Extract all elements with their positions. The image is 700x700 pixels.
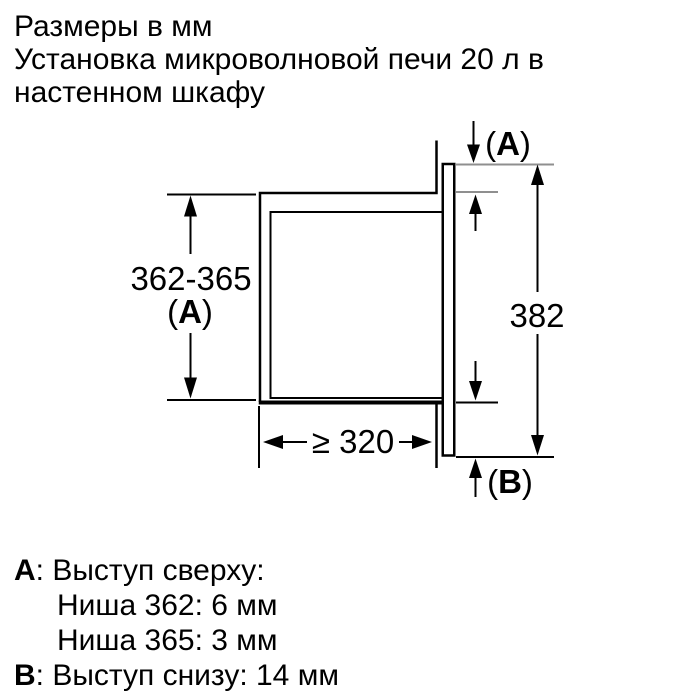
arrow-down-head xyxy=(184,378,197,399)
arrow-down-head xyxy=(467,145,480,164)
dim-niche-depth: ≥ 320 xyxy=(259,406,432,468)
legend-key-b: B xyxy=(14,659,36,692)
arrow-down-head xyxy=(469,381,482,401)
dim-front-frame-height: 382 xyxy=(509,165,564,456)
niche-height-value: 362-365 xyxy=(130,260,251,297)
legend-item-a-row1: Ниша 362: 6 мм xyxy=(57,588,339,623)
arrow-up-head xyxy=(184,196,197,217)
legend-item-b: B: Выступ снизу: 14 мм xyxy=(14,658,339,693)
cabinet-top-and-back xyxy=(260,141,437,403)
microwave-front-frame xyxy=(443,164,455,456)
dim-niche-height: 362-365 (A) xyxy=(130,195,256,401)
legend-key-a: A xyxy=(14,554,36,587)
arrow-up-head xyxy=(531,165,544,186)
niche-depth-value: ≥ 320 xyxy=(312,423,394,460)
bottom-protrusion-ref-label: (B) xyxy=(487,463,533,500)
legend-item-a-row2: Ниша 365: 3 мм xyxy=(57,623,339,658)
microwave-body xyxy=(271,212,447,398)
legend-text-a: : Выступ сверху: xyxy=(36,554,265,587)
legend-text-b: : Выступ снизу: 14 мм xyxy=(36,659,339,692)
legend-item-a: A: Выступ сверху: xyxy=(14,553,339,588)
niche-height-ref-label: (A) xyxy=(167,293,213,330)
top-protrusion-ref-label: (A) xyxy=(485,125,531,162)
arrow-up-head xyxy=(469,195,482,215)
cabinet-outline xyxy=(259,141,442,469)
legend: A: Выступ сверху: Ниша 362: 6 мм Ниша 36… xyxy=(14,553,339,693)
arrow-up-head xyxy=(469,459,482,479)
front-frame-height-value: 382 xyxy=(509,297,564,334)
arrow-down-head xyxy=(531,435,544,456)
arrow-right-head xyxy=(412,435,432,449)
dim-bottom-protrusion: (B) xyxy=(456,361,554,500)
arrow-left-head xyxy=(263,435,283,449)
